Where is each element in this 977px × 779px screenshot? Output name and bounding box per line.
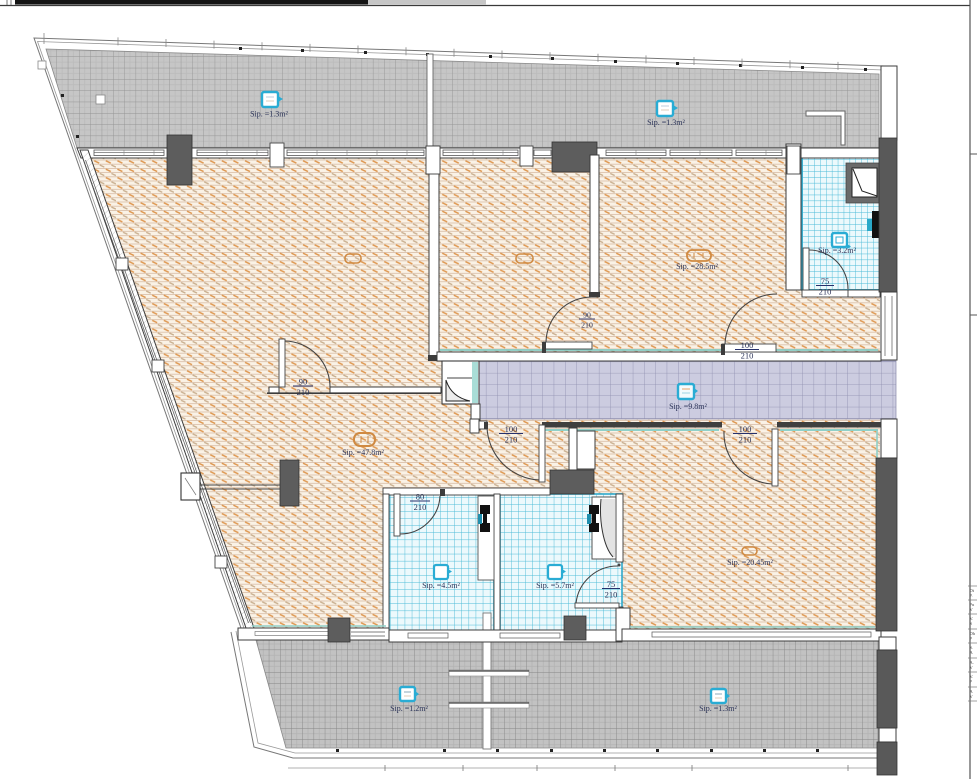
svg-text:100: 100 (505, 424, 518, 434)
svg-text:80: 80 (416, 492, 425, 502)
svg-text:210: 210 (581, 321, 593, 330)
svg-text:Sip. =28.5m²: Sip. =28.5m² (676, 262, 718, 271)
svg-text:Sip. =1.3m²: Sip. =1.3m² (699, 704, 737, 713)
svg-text:210: 210 (297, 387, 310, 397)
svg-text:210: 210 (414, 502, 427, 512)
svg-text:Sip. =1.3m²: Sip. =1.3m² (250, 110, 288, 119)
svg-text:210: 210 (741, 351, 754, 361)
svg-text:Sip. =1.2m²: Sip. =1.2m² (390, 704, 428, 713)
svg-text:90: 90 (299, 377, 308, 387)
svg-text:Sip. =4.5m²: Sip. =4.5m² (422, 581, 460, 590)
svg-text:100: 100 (741, 340, 754, 350)
svg-text:210: 210 (819, 287, 832, 297)
svg-text:210: 210 (739, 435, 752, 445)
svg-text:75: 75 (821, 276, 830, 286)
svg-text:Sip. =1.3m²: Sip. =1.3m² (647, 118, 685, 127)
svg-text:210: 210 (605, 590, 618, 600)
svg-text:P.: P. (970, 593, 973, 598)
svg-text:210: 210 (505, 435, 518, 445)
svg-text:100: 100 (739, 424, 752, 434)
svg-text:Sip. =20.45m²: Sip. =20.45m² (727, 558, 773, 567)
svg-text:90: 90 (583, 311, 591, 320)
svg-text:Sip. =5.7m²: Sip. =5.7m² (536, 581, 574, 590)
svg-text:Sip. =9.8m²: Sip. =9.8m² (669, 402, 707, 411)
svg-text:75: 75 (607, 579, 616, 589)
svg-text:Sip. =47.8m²: Sip. =47.8m² (342, 448, 384, 457)
